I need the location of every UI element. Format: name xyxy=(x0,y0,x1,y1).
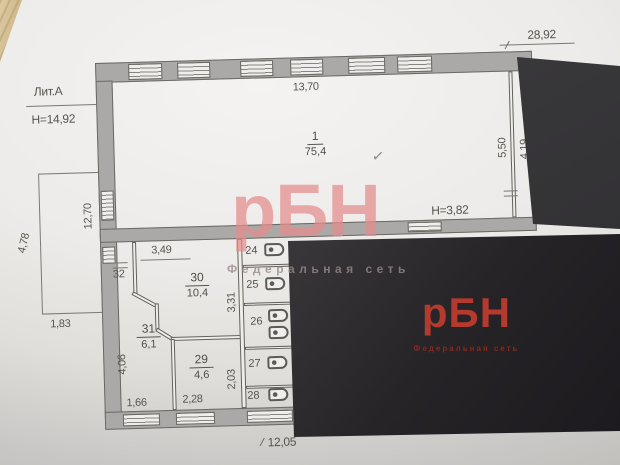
partition-diagonal xyxy=(131,291,157,307)
floorplan-photo: Лит.А Н=14,92 4,78 12,70 1,83 13,70 1 75… xyxy=(0,0,620,465)
partition-r29-top xyxy=(171,335,242,341)
window xyxy=(290,59,323,76)
card-tagline: Федеральная сеть xyxy=(404,344,529,353)
window xyxy=(247,410,293,423)
window xyxy=(240,60,273,77)
dim-corridor-width: 3,49 xyxy=(151,244,172,257)
dim-room31-width: 1,66 xyxy=(126,397,147,410)
stall-26-label: 26 xyxy=(250,315,263,327)
pencil-checkmark: ✓ xyxy=(371,146,386,165)
partition-r32 xyxy=(132,242,137,294)
partition-r31-r29 xyxy=(171,339,177,410)
toilet-icon xyxy=(265,277,285,291)
window xyxy=(177,62,210,79)
window xyxy=(102,247,115,264)
window xyxy=(101,191,115,221)
stall-27-label: 27 xyxy=(248,357,261,369)
toilet-icon xyxy=(268,388,288,402)
annex-outline xyxy=(38,172,103,315)
watermark-logo: рБН xyxy=(231,174,380,248)
window xyxy=(176,412,215,425)
stall-28-label: 28 xyxy=(247,390,260,402)
stall-25-label: 25 xyxy=(246,279,259,291)
litera-underline xyxy=(26,104,96,107)
dim-annex-depth: 4,78 xyxy=(16,232,32,254)
dim-line xyxy=(141,258,191,260)
watermark-tagline: Федеральная сеть xyxy=(227,262,410,276)
room-29-label: 29 4,6 xyxy=(183,350,220,382)
dim-stall-column: 3,31 xyxy=(225,292,238,313)
window xyxy=(123,413,160,426)
dim-room31-depth: 4,06 xyxy=(116,354,129,375)
dim-total-width: 28,92 xyxy=(527,27,556,42)
window xyxy=(397,56,432,73)
room-31-label: 31 6,1 xyxy=(130,319,167,351)
card-logo: рБН xyxy=(404,292,529,334)
stall-divider xyxy=(245,345,299,350)
dim-room29-depth: 2,03 xyxy=(226,369,239,390)
window xyxy=(408,221,442,232)
table-corner xyxy=(0,0,30,70)
room-height-label: Н=3,82 xyxy=(431,203,469,218)
room-1-label: 1 75,4 xyxy=(292,126,339,158)
room-32-label: 32 xyxy=(113,268,125,280)
dim-annex-width: 1,83 xyxy=(50,318,71,331)
stall-divider xyxy=(244,301,298,306)
toilet-icon xyxy=(267,356,287,370)
dim-room29-width: 2,28 xyxy=(182,393,203,406)
dim-tick xyxy=(260,438,265,446)
window xyxy=(348,57,385,74)
toilet-icon xyxy=(268,309,288,323)
litera-label: Лит.А xyxy=(34,84,63,99)
room-30-label: 30 10,4 xyxy=(177,268,218,300)
building-height-label: Н=14,92 xyxy=(31,112,75,127)
toilet-icon xyxy=(268,326,288,340)
dim-line xyxy=(500,43,575,46)
dim-bottom-width: 12,05 xyxy=(267,435,296,450)
door-mark xyxy=(113,262,128,263)
dim-hall-width: 13,70 xyxy=(293,81,319,94)
dim-left-inner: 12,70 xyxy=(82,203,95,229)
window xyxy=(128,63,162,80)
dim-right-depth: 5,50 xyxy=(496,137,509,158)
